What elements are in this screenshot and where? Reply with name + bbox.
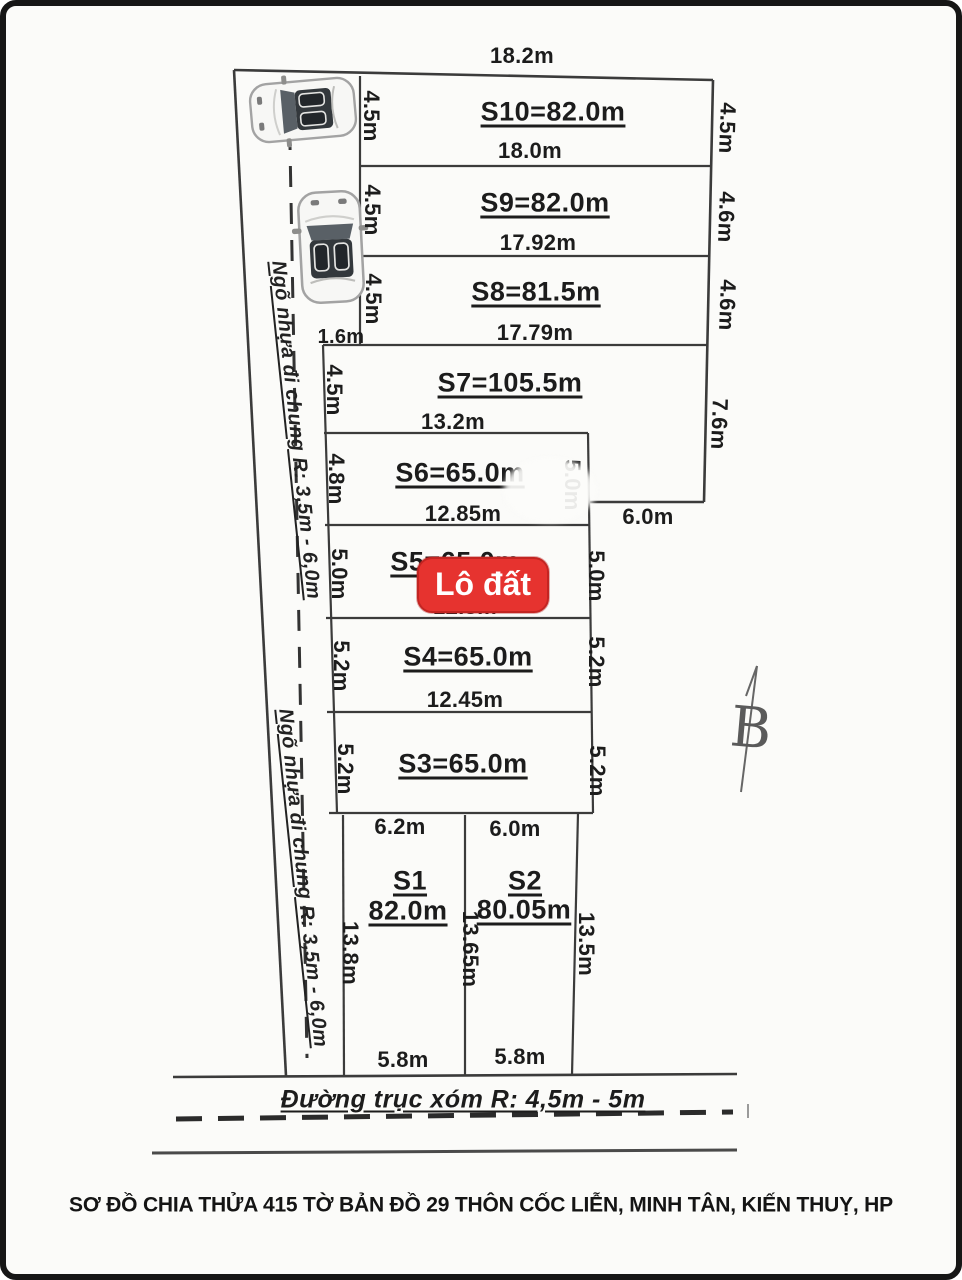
- dim-s1-mid: 13.65m: [459, 911, 481, 987]
- plot-s1-area: 82.0m: [368, 898, 447, 925]
- plot-s2-area: 80.05m: [477, 897, 572, 924]
- dim-s2-top: 6.0m: [489, 818, 540, 840]
- dim-s1-left: 13.8m: [339, 921, 361, 985]
- map-caption: SƠ ĐỒ CHIA THỬA 415 TỜ BẢN ĐỒ 29 THÔN CỐ…: [69, 1195, 893, 1216]
- dim-s5-left: 5.0m: [328, 548, 350, 599]
- dim-s10-right: 4.5m: [715, 102, 739, 154]
- dim-step-right: 6.0m: [622, 506, 673, 528]
- dim-parcel-top-width: 18.2m: [490, 45, 554, 67]
- plot-s2-label: S2: [508, 868, 542, 895]
- dim-s2-bottom: 5.8m: [494, 1046, 545, 1068]
- plot-s4-label: S4=65.0m: [403, 644, 532, 671]
- dim-s6-bottom: 12.85m: [425, 503, 501, 525]
- dim-s9-right: 4.6m: [714, 191, 738, 243]
- plot-s9-label: S9=82.0m: [480, 190, 609, 217]
- dim-s1-bottom: 5.8m: [377, 1049, 428, 1071]
- north-label: B: [728, 699, 774, 758]
- dim-s2-right: 13.5m: [575, 912, 597, 976]
- scan-smudge: [504, 458, 596, 522]
- plot-s3-label: S3=65.0m: [398, 751, 527, 778]
- dim-s4-bottom: 12.45m: [427, 689, 503, 711]
- dim-s7-bottom: 13.2m: [421, 411, 485, 433]
- main-road-edge-line: [152, 1150, 737, 1153]
- dim-s9-left: 4.5m: [361, 184, 383, 235]
- dim-s7-left: 4.5m: [323, 364, 345, 415]
- dim-s1-top: 6.2m: [374, 816, 425, 838]
- dim-s4-left: 5.2m: [330, 640, 352, 691]
- dim-s6-left: 4.8m: [325, 453, 347, 504]
- subdivision-map: 18.2m S10=82.0m S9=82.0m S8=81.5m S7=105…: [0, 0, 962, 1280]
- plot-s10-label: S10=82.0m: [481, 99, 626, 126]
- dim-s8-bottom: 17.79m: [497, 322, 573, 344]
- dim-s3-left: 5.2m: [334, 743, 356, 794]
- plot-s1-label: S1: [393, 868, 427, 895]
- dim-s5-right: 5.0m: [585, 550, 607, 601]
- main-road-label: Đường trục xóm R: 4,5m - 5m: [281, 1088, 646, 1113]
- plot-s7-label: S7=105.5m: [438, 370, 583, 397]
- dim-s3-right: 5.2m: [586, 745, 608, 796]
- car-icon: [248, 70, 358, 151]
- dim-s10-left: 4.5m: [360, 90, 382, 141]
- dim-s9-bottom: 17.92m: [500, 232, 576, 254]
- dim-step-left: 1.6m: [318, 327, 365, 347]
- dim-s8-left: 4.5m: [362, 273, 384, 324]
- dim-s8-right: 4.6m: [715, 279, 739, 331]
- dim-s10-bottom: 18.0m: [498, 140, 562, 162]
- lot-badge: Lô đất: [417, 557, 549, 613]
- plot-s8-label: S8=81.5m: [471, 279, 600, 306]
- dim-s4-right: 5.2m: [585, 636, 607, 687]
- dim-s7-right: 7.6m: [707, 398, 731, 450]
